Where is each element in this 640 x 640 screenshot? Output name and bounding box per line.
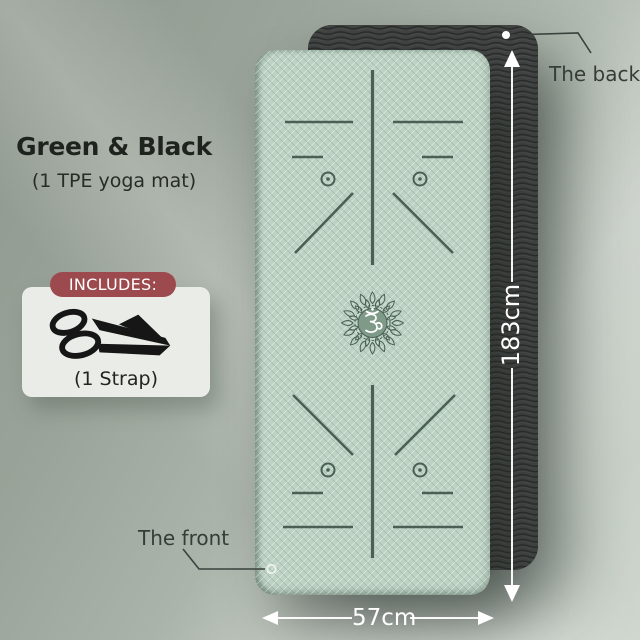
length-label: 183cm xyxy=(498,275,524,375)
yoga-strap-icon xyxy=(41,303,191,365)
width-label: 57cm xyxy=(352,605,410,631)
arrow-up-icon xyxy=(504,50,520,67)
width-dimension-line xyxy=(278,617,352,619)
product-subtitle: (1 TPE yoga mat) xyxy=(14,170,214,192)
width-dimension-line xyxy=(410,617,478,619)
front-label: The front xyxy=(138,526,229,550)
includes-card: (1 Strap) xyxy=(22,287,210,397)
back-label: The back xyxy=(549,62,640,86)
length-dimension-line xyxy=(511,66,513,282)
arrow-left-icon xyxy=(262,611,278,625)
length-dimension-line xyxy=(511,368,513,586)
arrow-down-icon xyxy=(504,585,520,602)
strap-count-label: (1 Strap) xyxy=(74,368,158,390)
front-yoga-mat xyxy=(255,50,490,595)
title-block: Green & Black (1 TPE yoga mat) xyxy=(14,132,214,192)
product-title: Green & Black xyxy=(14,132,214,161)
arrow-right-icon xyxy=(478,611,494,625)
includes-badge: INCLUDES: xyxy=(50,272,176,297)
product-image: 183cm 57cm The back The front Green & Bl… xyxy=(0,0,640,640)
alignment-lines xyxy=(255,50,490,595)
mandala xyxy=(342,292,404,354)
